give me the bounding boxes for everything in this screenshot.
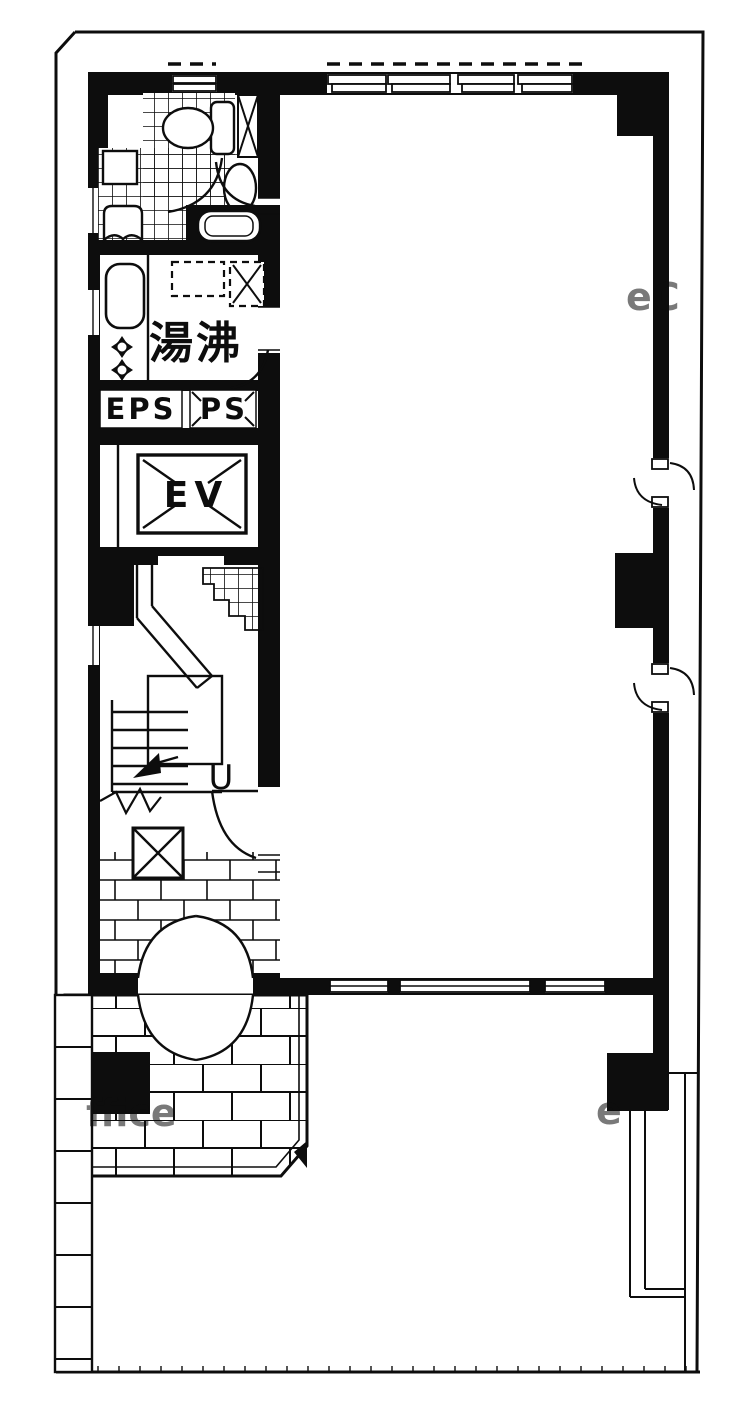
duct-shaft bbox=[238, 95, 258, 157]
stair-direction-label: U bbox=[209, 758, 234, 798]
watermark-fragment: eC bbox=[626, 275, 680, 319]
basement-channel bbox=[630, 1073, 697, 1372]
entrance-porch bbox=[55, 995, 307, 1372]
toilet-tank bbox=[211, 102, 234, 154]
ps-label: PS bbox=[200, 392, 248, 426]
watermark-fragment: e bbox=[596, 1089, 622, 1133]
floor-plan-screenshot: 湯沸 EPS PS EV U bbox=[0, 0, 745, 1416]
hand-basin-counter bbox=[186, 205, 280, 247]
eps-label: EPS bbox=[106, 392, 177, 426]
urinal bbox=[104, 206, 142, 240]
floor-plan-image: 湯沸 EPS PS EV U bbox=[0, 0, 745, 1416]
elevator-label: EV bbox=[164, 475, 228, 516]
watermark-fragment: ffice bbox=[86, 1091, 177, 1135]
toilet-bowl bbox=[163, 108, 213, 148]
lobby-column-x bbox=[133, 828, 183, 878]
kitchen-sink bbox=[106, 264, 144, 328]
left-brick-strip bbox=[55, 995, 92, 1372]
wall-chunk bbox=[88, 558, 134, 626]
elevator-room: EV bbox=[118, 445, 246, 547]
kitchenette-label: 湯沸 bbox=[149, 318, 243, 369]
equipment-dashed-x bbox=[230, 262, 264, 306]
shelf bbox=[103, 151, 137, 184]
